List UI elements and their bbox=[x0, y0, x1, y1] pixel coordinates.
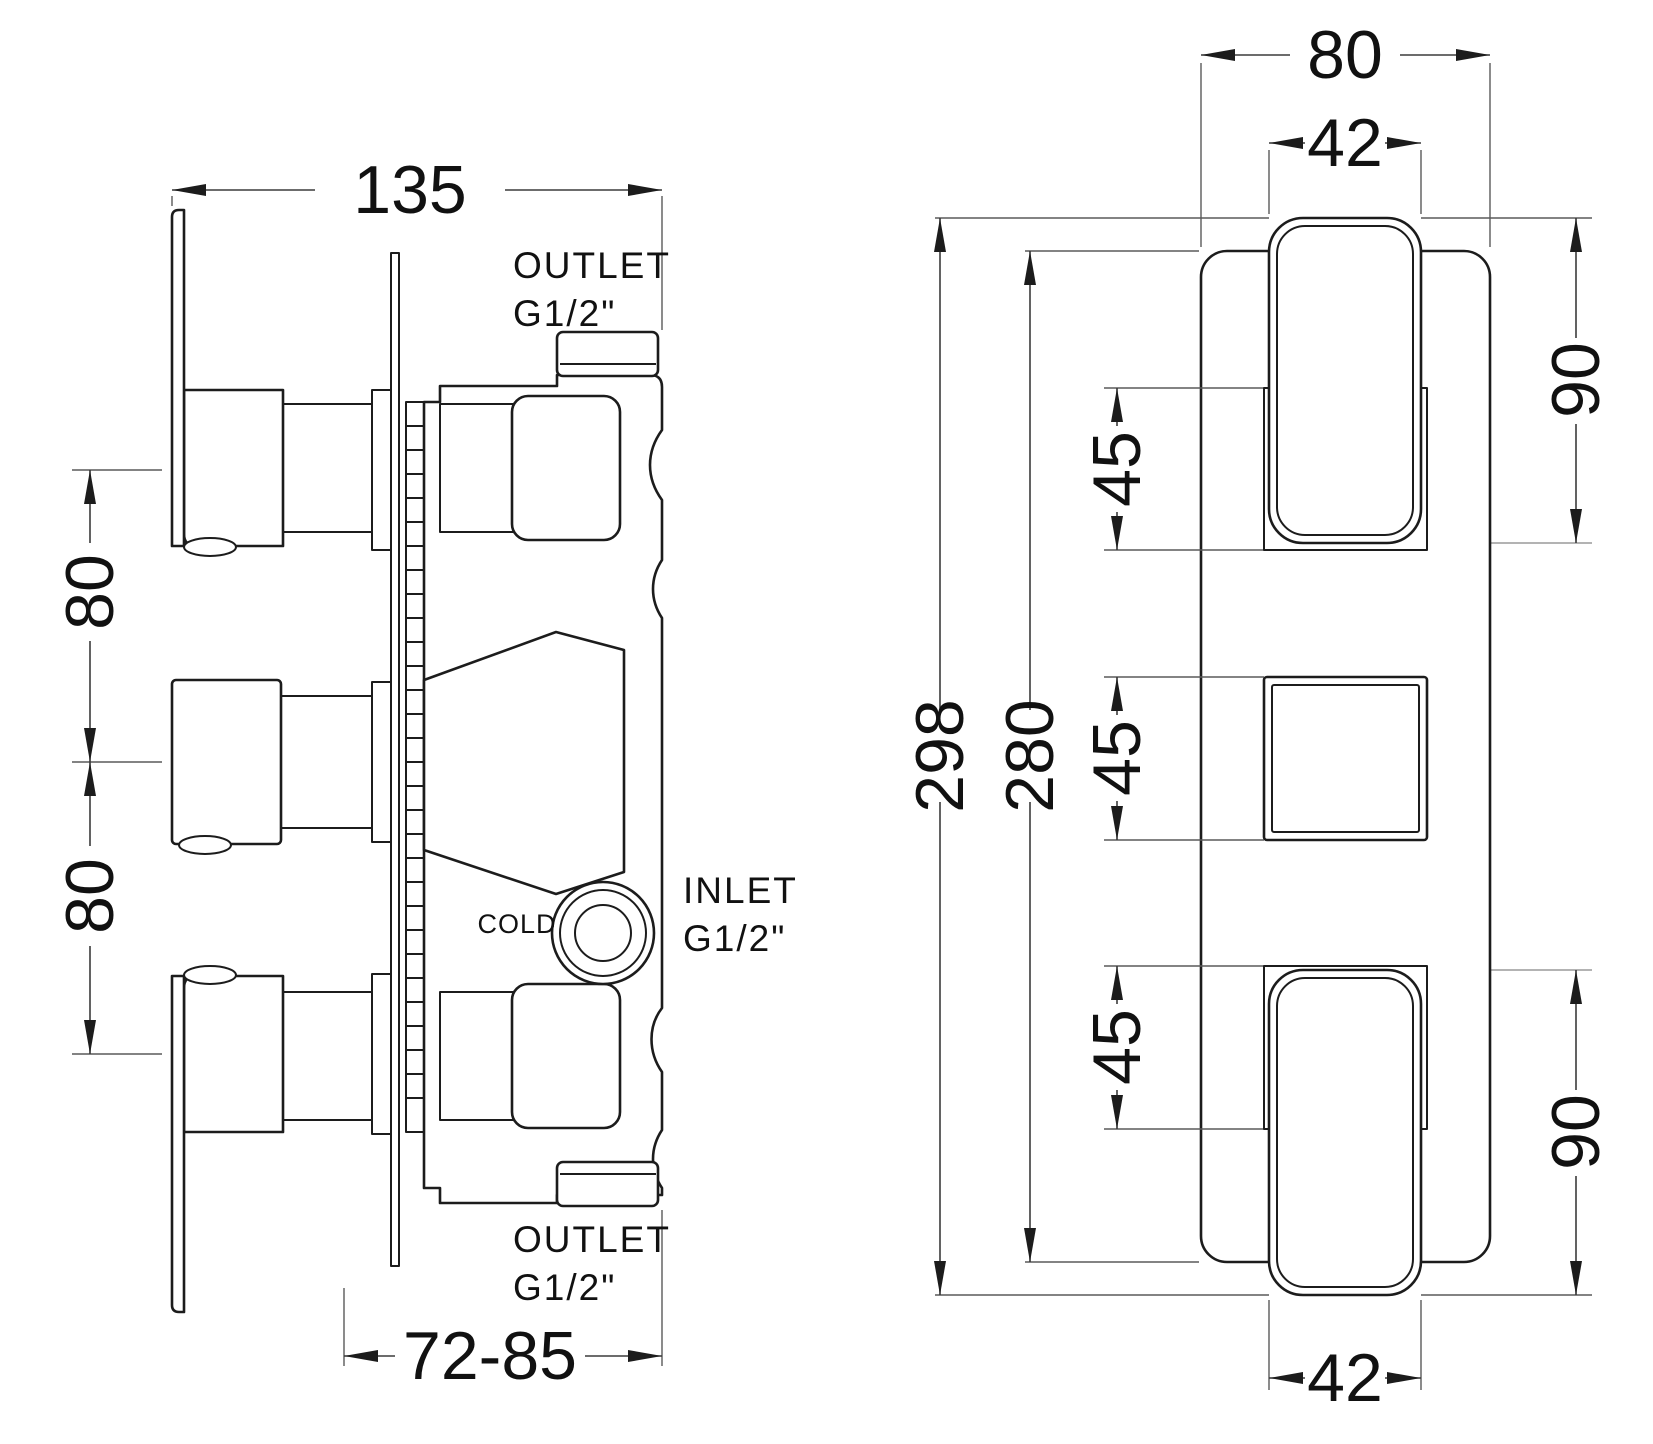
outlet-port-top bbox=[557, 332, 658, 376]
arrow-up-icon bbox=[1111, 677, 1123, 711]
dim-overall-height-298: 298 bbox=[902, 218, 978, 1295]
arrow-down-icon bbox=[934, 1261, 946, 1295]
inlet-line2: G1/2" bbox=[683, 918, 786, 959]
dim-escutcheon-45-top: 45 bbox=[1079, 388, 1155, 550]
label-outlet-top: OUTLET G1/2" bbox=[513, 245, 671, 334]
handle-middle-side bbox=[172, 680, 372, 854]
arrow-right-icon bbox=[1387, 1372, 1421, 1384]
side-view: 135 80 80 72-85 bbox=[52, 152, 798, 1394]
cartridge-top-a bbox=[440, 404, 515, 532]
handle-bottom-stem bbox=[283, 992, 372, 1120]
dim-handle-width-bottom-value: 42 bbox=[1307, 1340, 1383, 1416]
mounting-rail bbox=[406, 402, 424, 1132]
handle-top-screw bbox=[184, 538, 236, 556]
cartridge-top-b bbox=[512, 396, 620, 540]
arrow-up-icon bbox=[1570, 218, 1582, 252]
handle-top-side bbox=[172, 210, 372, 556]
shower-valve-dimension-drawing: 135 80 80 72-85 bbox=[0, 0, 1653, 1444]
outlet-port-bottom bbox=[557, 1162, 658, 1206]
arrow-up-icon bbox=[1111, 966, 1123, 1000]
dim-handle-height-90-bottom: 90 bbox=[1538, 970, 1614, 1295]
dim-handle-height-bottom-value: 90 bbox=[1538, 1094, 1614, 1170]
dim-escutcheon-bottom-value: 45 bbox=[1079, 1009, 1155, 1085]
handle-top-lever-blade bbox=[172, 210, 184, 546]
cartridge-bottom-b bbox=[512, 984, 620, 1128]
dim-plate-width-value: 80 bbox=[1307, 17, 1383, 93]
handle-bottom-inner bbox=[1277, 978, 1413, 1287]
dim-depth-value: 135 bbox=[353, 152, 466, 228]
handle-top-stem bbox=[283, 404, 372, 532]
label-outlet-bottom: OUTLET G1/2" bbox=[513, 1219, 671, 1308]
inlet-line1: INLET bbox=[683, 870, 798, 911]
label-cold: COLD bbox=[477, 909, 556, 939]
dim-plate-width-80: 80 bbox=[1201, 17, 1490, 93]
dim-spacing-80-chain: 80 80 bbox=[52, 470, 162, 1054]
dim-handle-height-90-top: 90 bbox=[1538, 218, 1614, 543]
dim-escutcheon-middle-value: 45 bbox=[1079, 720, 1155, 796]
handle-bottom-lever-blade bbox=[172, 976, 184, 1312]
dim-handle-width-42-top: 42 bbox=[1269, 105, 1421, 181]
arrow-left-icon bbox=[1201, 49, 1235, 61]
technical-drawing-page: 135 80 80 72-85 bbox=[0, 0, 1653, 1444]
arrow-left-icon bbox=[172, 184, 206, 196]
cartridge-bottom-a bbox=[440, 992, 515, 1120]
outlet-top-line1: OUTLET bbox=[513, 245, 671, 286]
dim-escutcheon-45-middle: 45 bbox=[1079, 677, 1155, 840]
wall-plate-side bbox=[391, 253, 399, 1266]
dim-escutcheon-top-value: 45 bbox=[1079, 431, 1155, 507]
arrow-down-icon bbox=[1111, 1095, 1123, 1129]
handle-bottom-front bbox=[1264, 966, 1427, 1295]
handle-bottom-side bbox=[172, 966, 372, 1312]
escutcheon-flanges-side bbox=[372, 390, 391, 1134]
dim-handle-width-top-value: 42 bbox=[1307, 105, 1383, 181]
valve-body bbox=[424, 332, 662, 1206]
arrow-up-icon bbox=[1111, 388, 1123, 422]
outlet-top-line2: G1/2" bbox=[513, 293, 616, 334]
handle-middle-face bbox=[172, 680, 281, 844]
arrow-up-icon bbox=[1024, 251, 1036, 285]
handle-middle-inner bbox=[1272, 685, 1419, 832]
arrow-up-icon bbox=[934, 218, 946, 252]
arrow-down-icon bbox=[1111, 516, 1123, 550]
dim-plate-height-value: 280 bbox=[992, 699, 1068, 812]
dim-spacing-bottom-value: 80 bbox=[52, 858, 128, 934]
arrow-up-icon bbox=[84, 470, 96, 504]
outlet-bottom-line2: G1/2" bbox=[513, 1267, 616, 1308]
arrow-left-icon bbox=[1269, 137, 1303, 149]
handle-middle-stem bbox=[281, 696, 372, 828]
dim-handle-height-top-value: 90 bbox=[1538, 342, 1614, 418]
label-inlet: INLET G1/2" bbox=[683, 870, 798, 959]
handle-middle-front bbox=[1264, 677, 1427, 840]
arrow-up-icon bbox=[1570, 970, 1582, 1004]
handle-top-inner bbox=[1277, 226, 1413, 535]
handle-top-body bbox=[184, 390, 283, 546]
arrow-right-icon bbox=[628, 184, 662, 196]
arrow-down-icon bbox=[84, 728, 96, 762]
arrow-left-icon bbox=[1269, 1372, 1303, 1384]
handle-bottom-screw bbox=[184, 966, 236, 984]
dim-plate-height-280: 280 bbox=[992, 251, 1068, 1262]
arrow-left-icon bbox=[344, 1350, 378, 1362]
dim-recess-value: 72-85 bbox=[403, 1318, 577, 1394]
arrow-right-icon bbox=[1387, 137, 1421, 149]
arrow-right-icon bbox=[1456, 49, 1490, 61]
handle-middle-screw bbox=[179, 836, 231, 854]
dim-handle-width-42-bottom: 42 bbox=[1269, 1340, 1421, 1416]
dim-overall-height-value: 298 bbox=[902, 699, 978, 812]
handle-top-front bbox=[1264, 218, 1427, 550]
dim-spacing-top-value: 80 bbox=[52, 554, 128, 630]
arrow-up-icon bbox=[84, 762, 96, 796]
arrow-down-icon bbox=[84, 1020, 96, 1054]
thermostat-cone bbox=[424, 632, 624, 894]
arrow-down-icon bbox=[1111, 806, 1123, 840]
inlet-port-circle bbox=[552, 882, 654, 984]
front-view: 80 42 298 280 45 bbox=[902, 17, 1614, 1416]
arrow-down-icon bbox=[1570, 509, 1582, 543]
outlet-bottom-line1: OUTLET bbox=[513, 1219, 671, 1260]
dim-escutcheon-45-bottom: 45 bbox=[1079, 966, 1155, 1129]
arrow-right-icon bbox=[628, 1350, 662, 1362]
arrow-down-icon bbox=[1024, 1228, 1036, 1262]
arrow-down-icon bbox=[1570, 1261, 1582, 1295]
handle-bottom-body bbox=[184, 976, 283, 1132]
